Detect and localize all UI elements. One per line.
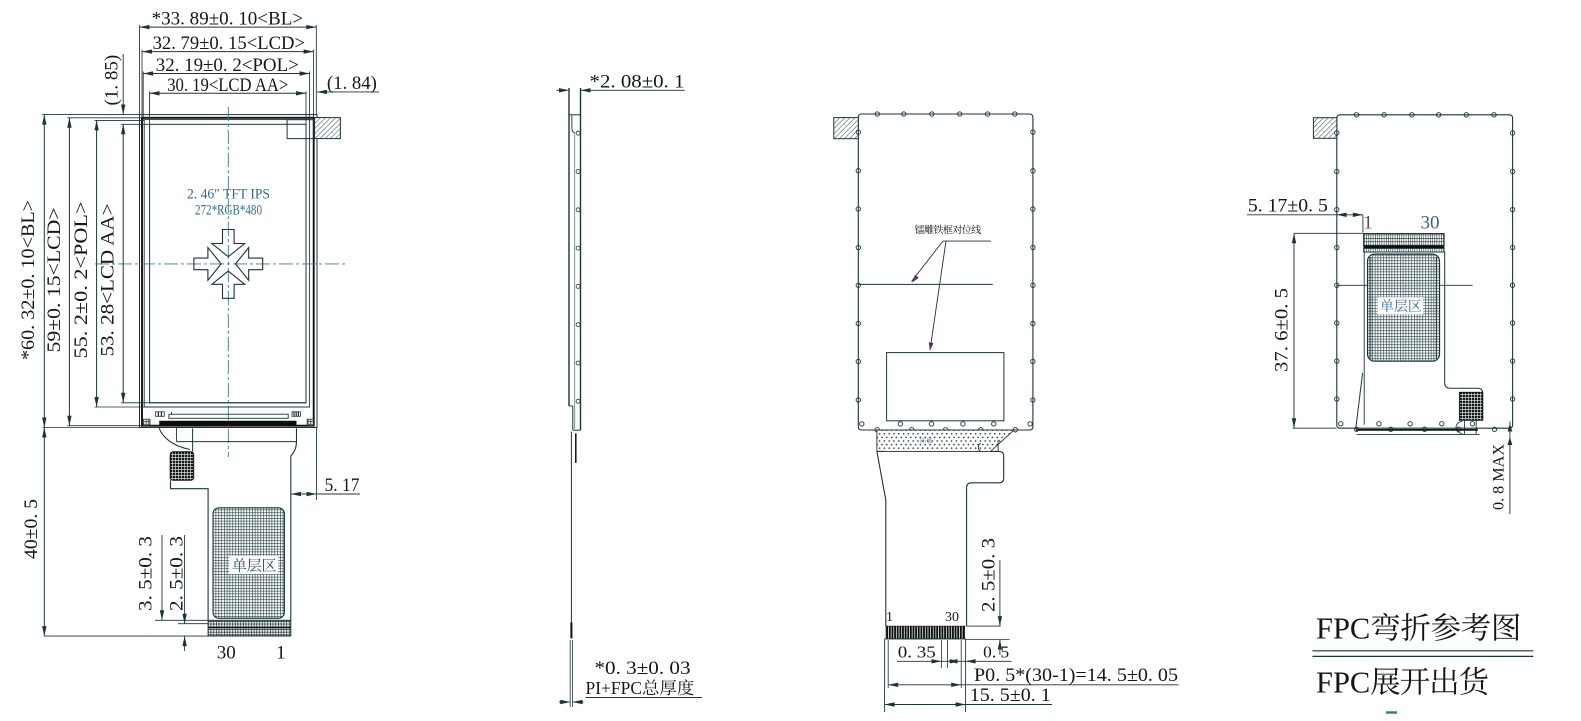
- svg-text:2. 46″ TFT IPS: 2. 46″ TFT IPS: [187, 187, 270, 203]
- svg-text:F: F: [1316, 666, 1333, 700]
- svg-text:*60. 32±0. 10<BL>: *60. 32±0. 10<BL>: [18, 200, 39, 360]
- svg-text:0. 5: 0. 5: [983, 643, 1009, 662]
- svg-text:1: 1: [886, 610, 893, 625]
- svg-text:30: 30: [1421, 213, 1440, 234]
- svg-text:0. 35: 0. 35: [898, 643, 936, 662]
- svg-text:5. 17±0. 5: 5. 17±0. 5: [1248, 196, 1328, 217]
- svg-text:F: F: [611, 678, 621, 698]
- svg-text:30. 19<LCD AA>: 30. 19<LCD AA>: [167, 75, 288, 96]
- svg-text:272*RGB*480: 272*RGB*480: [195, 203, 262, 219]
- svg-text:F: F: [1316, 612, 1333, 646]
- svg-text:5. 17: 5. 17: [325, 475, 360, 496]
- svg-text:59±0. 15<LCD>: 59±0. 15<LCD>: [44, 208, 65, 353]
- svg-text:3. 5±0. 3: 3. 5±0. 3: [136, 536, 157, 611]
- svg-text:C: C: [1350, 666, 1370, 700]
- svg-text:*2. 08±0. 1: *2. 08±0. 1: [590, 72, 685, 93]
- svg-text:*33. 89±0. 10<BL>: *33. 89±0. 10<BL>: [152, 9, 304, 30]
- svg-text:53. 28<LCD AA>: 53. 28<LCD AA>: [98, 204, 119, 357]
- svg-text:2. 5±0. 3: 2. 5±0. 3: [167, 536, 188, 611]
- svg-text:P: P: [1333, 666, 1350, 700]
- svg-text:15. 5±0. 1: 15. 5±0. 1: [970, 685, 1051, 706]
- svg-text:0. 8 MAX: 0. 8 MAX: [1491, 444, 1508, 510]
- svg-text:32. 19±0. 2<POL>: 32. 19±0. 2<POL>: [156, 55, 299, 76]
- svg-text:30: 30: [945, 610, 959, 625]
- svg-text:(1. 84): (1. 84): [327, 73, 377, 94]
- svg-text:1: 1: [276, 643, 286, 664]
- svg-text:1: 1: [1363, 213, 1373, 234]
- svg-text:P0. 5*(30-1)=14. 5±0. 05: P0. 5*(30-1)=14. 5±0. 05: [974, 665, 1178, 686]
- svg-text:37. 6±0. 5: 37. 6±0. 5: [1272, 288, 1293, 372]
- svg-text:40±0. 5: 40±0. 5: [21, 499, 42, 559]
- svg-text:C: C: [1350, 612, 1370, 646]
- svg-text:P: P: [586, 678, 596, 698]
- svg-text:30: 30: [217, 643, 236, 664]
- svg-text:+: +: [601, 678, 611, 698]
- svg-text:55. 2±0. 2<POL>: 55. 2±0. 2<POL>: [71, 202, 92, 359]
- svg-text:*0. 3±0. 03: *0. 3±0. 03: [595, 658, 691, 679]
- svg-text:C: C: [630, 678, 642, 698]
- svg-text:P: P: [1333, 612, 1350, 646]
- svg-text:32. 79±0. 15<LCD>: 32. 79±0. 15<LCD>: [153, 33, 305, 54]
- svg-text:P: P: [621, 678, 631, 698]
- svg-text:2. 5±0. 3: 2. 5±0. 3: [979, 538, 1000, 612]
- svg-text:(1. 85): (1. 85): [102, 55, 123, 106]
